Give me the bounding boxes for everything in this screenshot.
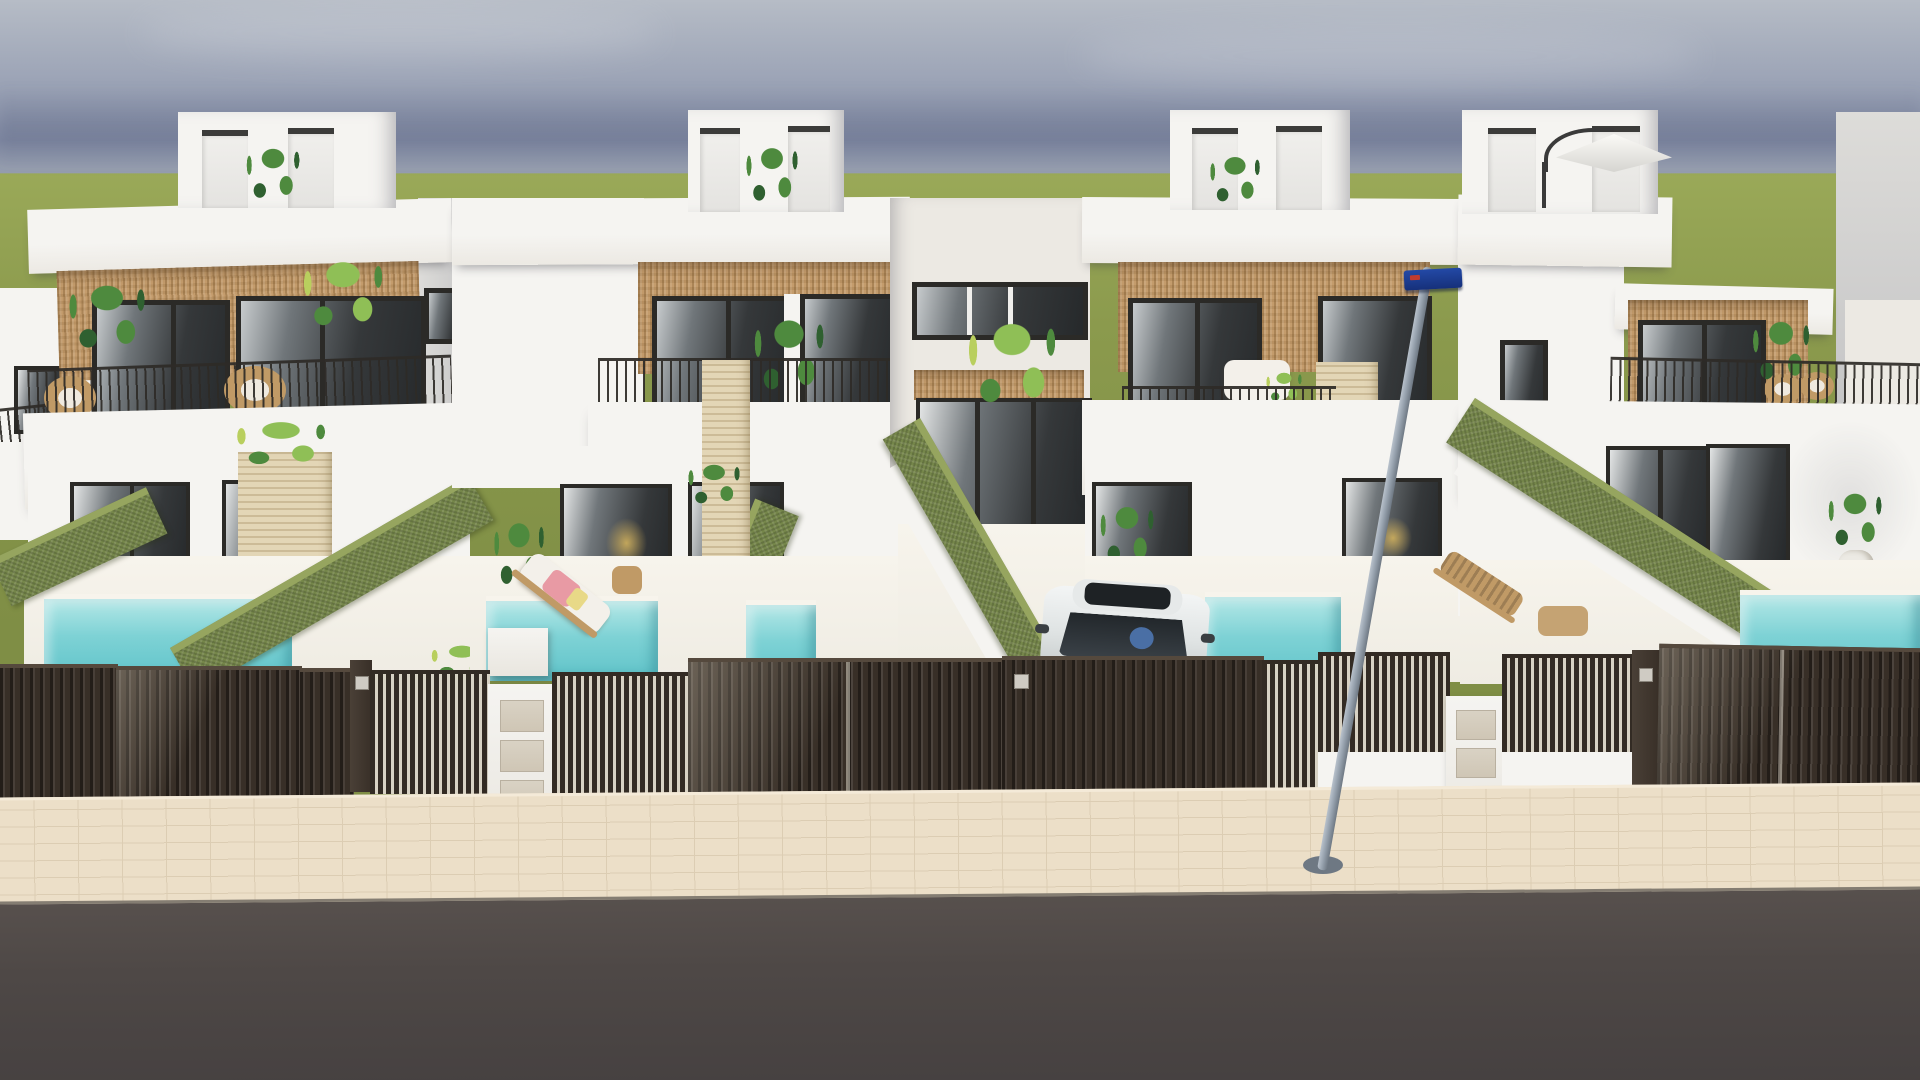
gate-seam: [846, 662, 850, 800]
house2-pillar-plant: [682, 450, 746, 516]
house1-balcony-plant: [294, 238, 392, 346]
mailbox-hatch: [1456, 748, 1496, 778]
wooden-lounger-partial: [1538, 606, 1588, 636]
driveway-gate-double: [688, 658, 1004, 800]
house4-glass-door-right: [1706, 444, 1790, 570]
gate-center-dark: [1002, 656, 1264, 800]
open-slat-fence: [1262, 660, 1320, 798]
open-slat-fence: [1318, 652, 1450, 752]
cloud: [1080, 26, 1700, 86]
house3-large-palm: [958, 294, 1066, 428]
gate-seam: [1778, 650, 1785, 796]
house2-roof-plant: [740, 128, 804, 218]
intercom-plate: [1639, 668, 1653, 682]
roof-access-door: [1488, 128, 1536, 212]
mailbox-hatch: [500, 700, 544, 732]
car-mirror-left: [1035, 624, 1050, 634]
house4-potted-plant-leaves: [1822, 474, 1888, 562]
house1-balcony-palm: [60, 262, 154, 368]
architectural-render-scene: [0, 0, 1920, 1080]
fence-pillar: [1632, 650, 1660, 790]
car-mirror-right: [1201, 633, 1216, 643]
asphalt-road: [0, 886, 1920, 1080]
street-sign-red-mark: [1410, 275, 1420, 281]
street-sign: [1403, 262, 1468, 293]
cloud: [140, 6, 660, 60]
mailbox-hatch: [500, 740, 544, 772]
gate-house1-left: [0, 664, 118, 802]
gate-house4-slatted: [1657, 644, 1920, 799]
house1-pillar-plant: [226, 406, 336, 478]
fence-pillar: [350, 660, 372, 792]
mailbox-hatch: [1456, 710, 1496, 740]
wooden-side-table: [612, 566, 642, 594]
gate-house1-slatted: [116, 666, 302, 800]
open-slat-fence: [370, 670, 490, 794]
intercom-plate: [355, 676, 369, 690]
fence-panel: [300, 668, 354, 796]
open-slat-fence: [552, 672, 690, 796]
open-slat-fence: [1502, 654, 1634, 752]
roof-access-door: [700, 128, 740, 212]
house1-roof-plant: [240, 130, 306, 214]
roof-access-door: [1276, 126, 1322, 210]
house3-roof-plant: [1204, 140, 1266, 216]
intercom-plate: [1014, 674, 1029, 689]
